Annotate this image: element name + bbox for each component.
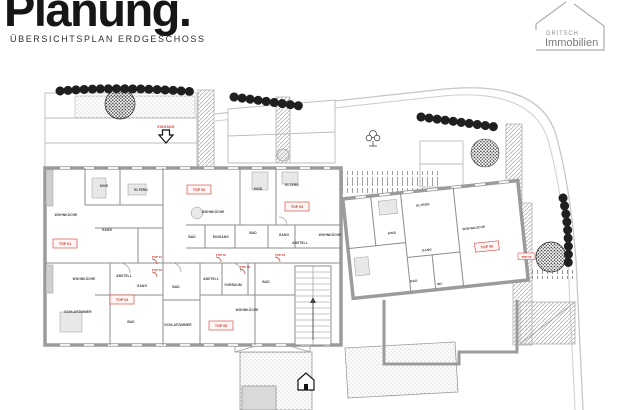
room-label: BAD [410, 279, 418, 284]
room-label: ELTERN [134, 188, 148, 192]
room-label: BAD [172, 285, 180, 289]
unit-label-box: TOP 02 [187, 185, 211, 194]
room-label: BAD [188, 235, 196, 239]
svg-text:TOP 03: TOP 03 [275, 253, 286, 257]
svg-text:TOP 04: TOP 04 [152, 268, 163, 272]
company-logo: GRITSCH Immobilien [522, 0, 614, 59]
room-label: WOHNKÜCHE [236, 307, 259, 312]
unit-label-box: TOP 01 [53, 239, 77, 248]
svg-text:TOP 01: TOP 01 [152, 255, 163, 259]
room-label: SCHLAFZIMMER [64, 310, 92, 314]
room-label: ELTERN [285, 183, 299, 187]
room-label: GANG [279, 233, 290, 237]
unit-label-box: TOP 03 [285, 202, 309, 211]
room-label: WOHNKÜCHE [319, 232, 342, 237]
room-label: VORRAUM [224, 283, 242, 287]
room-label: BAD [262, 280, 270, 284]
room-label: ABSTELL [116, 274, 132, 278]
logo-house-icon [536, 2, 566, 30]
svg-text:TOP 02: TOP 02 [193, 188, 205, 192]
room-label: KIND [100, 184, 109, 188]
floor-plan-drawing: WOHNKÜCHE KIND ELTERN GANG BAD WOHNKÜCHE… [0, 0, 620, 410]
room-label: SCHLAFZIMMER [164, 323, 192, 327]
room-label: WC [437, 282, 444, 287]
svg-text:TOP 06: TOP 06 [522, 255, 532, 259]
room-label: ABSTELL [203, 277, 219, 281]
room-label: GANG [102, 228, 113, 232]
room-label: ABSTELL [292, 241, 308, 245]
room-label: BAD [127, 320, 135, 324]
staircase [295, 266, 331, 345]
svg-text:TOP 02: TOP 02 [216, 253, 227, 257]
building-right [343, 181, 528, 299]
unit-label-box: TOP 05 [209, 321, 233, 330]
room-label: WOHNKÜCHE [73, 276, 96, 281]
small-tree-icon [366, 131, 380, 147]
room-label: BAD [249, 231, 257, 235]
svg-text:TOP 05: TOP 05 [240, 265, 251, 269]
unit-label-box: TOP 06 [518, 253, 535, 260]
room-label: WOHNKÜCHE [55, 212, 78, 217]
building-left [45, 168, 368, 345]
room-label: GANG [137, 284, 148, 288]
logo-line2: Immobilien [545, 37, 598, 49]
svg-text:TOP 05: TOP 05 [215, 324, 227, 328]
svg-text:TOP 04: TOP 04 [116, 298, 128, 302]
room-label: EINGANG [213, 235, 229, 239]
svg-text:TOP 03: TOP 03 [291, 205, 303, 209]
room-label: WOHNKÜCHE [202, 209, 225, 214]
room-label: KIND [254, 187, 263, 191]
entrance-label: EINGANG [157, 125, 174, 129]
unit-label-box: TOP 04 [110, 295, 134, 304]
svg-text:TOP 01: TOP 01 [59, 242, 71, 246]
